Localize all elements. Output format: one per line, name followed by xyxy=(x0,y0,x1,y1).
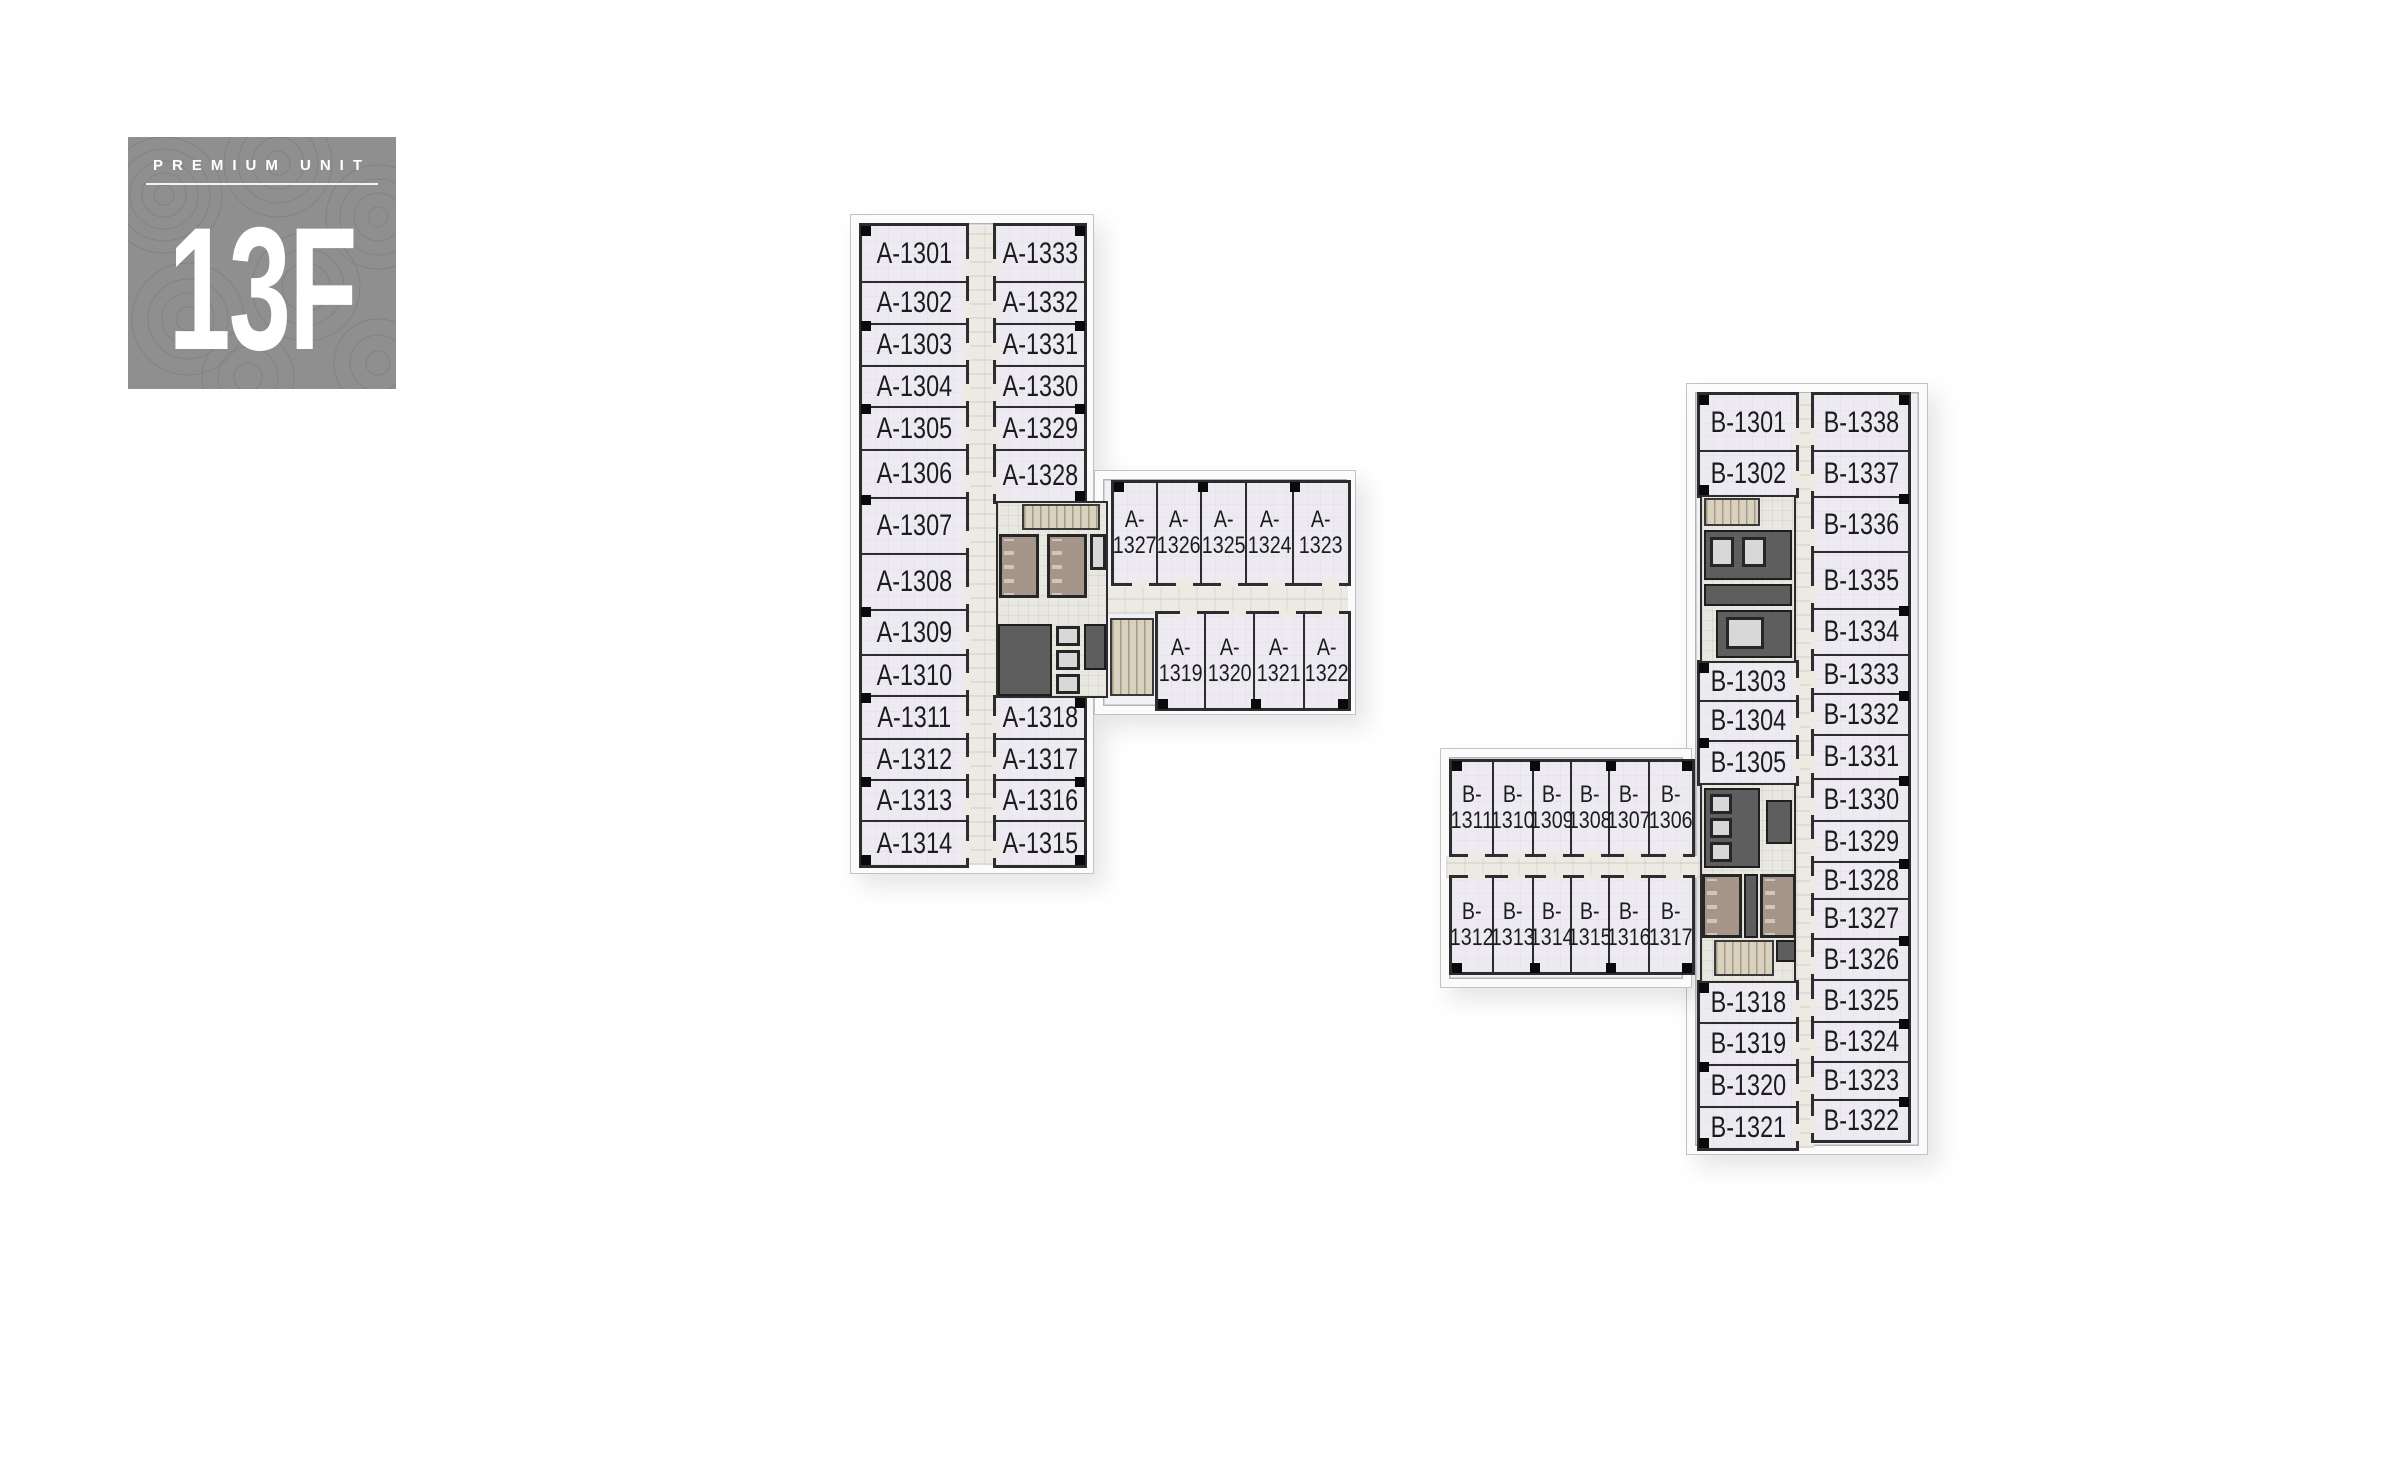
column-dot xyxy=(1699,1062,1709,1072)
door-opening xyxy=(963,384,970,401)
building-a-core-elevator xyxy=(1056,626,1080,646)
unit-label: A-1307 xyxy=(876,509,951,543)
unit-a-1322: A-1322 xyxy=(1305,614,1348,708)
door-opening xyxy=(1810,999,1817,1016)
unit-b-1303: B-1303 xyxy=(1700,663,1796,702)
door-opening xyxy=(1810,1039,1817,1056)
column-dot xyxy=(861,693,871,703)
unit-label: A-1308 xyxy=(876,565,951,599)
building-a-core-elevator xyxy=(1056,650,1080,670)
column-dot xyxy=(1899,395,1909,405)
unit-a-1317: A-1317 xyxy=(996,740,1084,781)
unit-b-1309: B-1309 xyxy=(1534,762,1572,854)
unit-a-1321: A-1321 xyxy=(1255,614,1305,708)
unit-label: B-1336 xyxy=(1823,508,1898,542)
unit-label: A-1320 xyxy=(1208,635,1252,687)
column-dot xyxy=(1699,1138,1709,1148)
column-dot xyxy=(1682,761,1692,771)
unit-a-1314: A-1314 xyxy=(862,822,966,865)
unit-label: A-1331 xyxy=(1002,328,1077,362)
unit-b-1310: B-1310 xyxy=(1494,762,1534,854)
unit-label: A-1311 xyxy=(877,701,951,735)
column-dot xyxy=(1158,699,1168,709)
door-opening xyxy=(1180,610,1197,617)
floor-number: 13F xyxy=(176,189,348,389)
unit-label: B-1325 xyxy=(1823,984,1898,1018)
building-b-lower-core-stairs xyxy=(1714,940,1774,976)
unit-a-1305: A-1305 xyxy=(862,408,966,451)
column-dot xyxy=(861,607,871,617)
unit-label: B-1337 xyxy=(1823,457,1898,491)
floor-badge: PREMIUM UNIT 13F xyxy=(128,137,396,389)
building-b-lower-core-room xyxy=(1766,800,1792,844)
column-dot xyxy=(1075,404,1085,414)
unit-label: B-1326 xyxy=(1823,943,1898,977)
unit-a-1301: A-1301 xyxy=(862,226,966,283)
door-opening xyxy=(1468,874,1485,881)
door-opening xyxy=(1793,718,1800,735)
unit-b-1338: B-1338 xyxy=(1814,395,1908,452)
unit-label: B-1313 xyxy=(1491,899,1535,951)
column-dot xyxy=(1899,1097,1909,1107)
unit-b-1316: B-1316 xyxy=(1610,878,1650,972)
unit-label: A-1316 xyxy=(1002,784,1077,818)
unit-label: B-1318 xyxy=(1710,986,1785,1020)
unit-label: B-1338 xyxy=(1823,406,1898,440)
unit-label: B-1324 xyxy=(1823,1025,1898,1059)
door-opening xyxy=(1584,874,1601,881)
unit-a-1330: A-1330 xyxy=(996,367,1084,408)
unit-b-1330: B-1330 xyxy=(1814,780,1908,822)
unit-a-1323: A-1323 xyxy=(1294,483,1348,583)
door-opening xyxy=(1810,876,1817,893)
door-opening xyxy=(963,587,970,604)
unit-label: A-1329 xyxy=(1002,412,1077,446)
door-opening xyxy=(963,632,970,649)
column-dot xyxy=(1452,963,1462,973)
building-b-wing-bottom-row: B-1312B-1313B-1314B-1315B-1316B-1317 xyxy=(1449,875,1695,975)
door-opening xyxy=(1508,874,1525,881)
unit-label: A-1319 xyxy=(1159,635,1203,687)
column-dot xyxy=(1198,482,1208,492)
unit-b-1336: B-1336 xyxy=(1814,498,1908,553)
unit-label: A-1330 xyxy=(1002,370,1077,404)
door-opening xyxy=(1810,529,1817,546)
column-dot xyxy=(861,777,871,787)
building-b-core-elevator xyxy=(1710,842,1732,862)
unit-label: A-1327 xyxy=(1113,507,1157,559)
unit-a-1318: A-1318 xyxy=(996,698,1084,740)
unit-b-1337: B-1337 xyxy=(1814,452,1908,498)
unit-label: B-1311 xyxy=(1451,782,1493,834)
column-dot xyxy=(1075,855,1085,865)
unit-b-1328: B-1328 xyxy=(1814,863,1908,900)
unit-b-1308: B-1308 xyxy=(1572,762,1610,854)
door-opening xyxy=(963,673,970,690)
building-b-lower-core-room xyxy=(1776,940,1796,962)
door-opening xyxy=(1666,874,1683,881)
unit-b-1322: B-1322 xyxy=(1814,1101,1908,1140)
unit-label: A-1322 xyxy=(1305,635,1349,687)
column-dot xyxy=(1606,963,1616,973)
column-dot xyxy=(1606,761,1616,771)
door-opening xyxy=(1793,1000,1800,1017)
unit-label: A-1326 xyxy=(1157,507,1201,559)
building-a-wing-bottom-row: A-1319A-1320A-1321A-1322 xyxy=(1155,611,1351,711)
unit-b-1323: B-1323 xyxy=(1814,1063,1908,1101)
door-opening xyxy=(1468,851,1485,858)
unit-b-1304: B-1304 xyxy=(1700,702,1796,742)
unit-label: A-1313 xyxy=(876,784,951,818)
door-opening xyxy=(963,757,970,774)
door-opening xyxy=(1793,428,1800,445)
unit-label: A-1323 xyxy=(1299,507,1343,559)
unit-label: A-1332 xyxy=(1002,286,1077,320)
unit-a-1324: A-1324 xyxy=(1247,483,1294,583)
door-opening xyxy=(1810,632,1817,649)
column-dot xyxy=(1682,963,1692,973)
building-a-wing-top-row: A-1327A-1326A-1325A-1324A-1323 xyxy=(1111,480,1351,586)
unit-a-1331: A-1331 xyxy=(996,325,1084,367)
unit-b-1307: B-1307 xyxy=(1610,762,1650,854)
door-opening xyxy=(963,798,970,815)
building-b-core-elevator xyxy=(1742,537,1766,567)
door-opening xyxy=(1793,471,1800,488)
unit-label: B-1305 xyxy=(1710,746,1785,780)
door-opening xyxy=(1793,678,1800,695)
unit-label: B-1323 xyxy=(1823,1064,1898,1098)
column-dot xyxy=(1699,738,1709,748)
door-opening xyxy=(1810,671,1817,688)
unit-label: A-1314 xyxy=(876,827,951,861)
unit-label: A-1325 xyxy=(1202,507,1246,559)
unit-label: A-1309 xyxy=(876,616,951,650)
premium-unit-label: PREMIUM UNIT xyxy=(146,157,378,185)
building-a-right-column-bottom: A-1318A-1317A-1316A-1315 xyxy=(993,695,1087,868)
building-a-right-column-top: A-1333A-1332A-1331A-1330A-1329A-1328 xyxy=(993,223,1087,504)
door-opening xyxy=(1268,580,1285,587)
unit-label: B-1301 xyxy=(1710,406,1785,440)
column-dot xyxy=(1899,494,1909,504)
column-dot xyxy=(1530,761,1540,771)
door-opening xyxy=(1624,874,1641,881)
column-dot xyxy=(1075,777,1085,787)
unit-label: B-1306 xyxy=(1649,782,1693,834)
unit-b-1302: B-1302 xyxy=(1700,452,1796,495)
unit-b-1332: B-1332 xyxy=(1814,695,1908,736)
building-b-core-washroom xyxy=(1760,874,1796,938)
column-dot xyxy=(1290,482,1300,492)
building-a-core-washroom xyxy=(999,534,1039,598)
unit-a-1315: A-1315 xyxy=(996,822,1084,865)
unit-label: B-1332 xyxy=(1823,698,1898,732)
building-a-core-washroom xyxy=(1047,534,1087,598)
door-opening xyxy=(1221,580,1238,587)
unit-a-1333: A-1333 xyxy=(996,226,1084,283)
unit-a-1316: A-1316 xyxy=(996,781,1084,822)
unit-label: B-1320 xyxy=(1710,1069,1785,1103)
unit-a-1319: A-1319 xyxy=(1158,614,1206,708)
unit-label: A-1305 xyxy=(876,412,951,446)
door-opening xyxy=(1810,586,1817,603)
unit-b-1329: B-1329 xyxy=(1814,822,1908,863)
door-opening xyxy=(1810,1116,1817,1133)
unit-b-1306: B-1306 xyxy=(1650,762,1692,854)
unit-label: A-1321 xyxy=(1257,635,1301,687)
door-opening xyxy=(1810,839,1817,856)
door-opening xyxy=(963,343,970,360)
unit-label: B-1317 xyxy=(1649,899,1693,951)
building-b-upper-core-stairs xyxy=(1704,498,1760,526)
unit-label: B-1327 xyxy=(1823,902,1898,936)
unit-b-1301: B-1301 xyxy=(1700,395,1796,452)
unit-label: B-1330 xyxy=(1823,783,1898,817)
unit-label: B-1335 xyxy=(1823,564,1898,598)
door-opening xyxy=(1793,1084,1800,1101)
unit-b-1324: B-1324 xyxy=(1814,1023,1908,1063)
column-dot xyxy=(1899,1019,1909,1029)
door-opening xyxy=(1810,428,1817,445)
building-a-core-room xyxy=(1084,624,1106,670)
door-opening xyxy=(1793,1124,1800,1141)
door-opening xyxy=(992,301,999,318)
building-a-left-column: A-1301A-1302A-1303A-1304A-1305A-1306A-13… xyxy=(859,223,969,868)
unit-label: B-1333 xyxy=(1823,658,1898,692)
door-opening xyxy=(1793,759,1800,776)
door-opening xyxy=(963,427,970,444)
unit-a-1308: A-1308 xyxy=(862,555,966,611)
column-dot xyxy=(1899,936,1909,946)
column-dot xyxy=(1699,395,1709,405)
building-a-core-elevator xyxy=(1056,674,1080,694)
unit-label: B-1329 xyxy=(1823,825,1898,859)
unit-a-1326: A-1326 xyxy=(1158,483,1202,583)
door-opening xyxy=(1810,756,1817,773)
column-dot xyxy=(1899,776,1909,786)
unit-label: B-1303 xyxy=(1710,665,1785,699)
unit-label: B-1319 xyxy=(1710,1027,1785,1061)
door-opening xyxy=(1322,580,1339,587)
door-opening xyxy=(992,798,999,815)
building-a-wing-corridor xyxy=(1106,587,1348,614)
unit-b-1313: B-1313 xyxy=(1494,878,1534,972)
unit-label: A-1333 xyxy=(1002,237,1077,271)
door-opening xyxy=(1810,916,1817,933)
unit-a-1327: A-1327 xyxy=(1114,483,1158,583)
door-opening xyxy=(963,841,970,858)
unit-label: A-1318 xyxy=(1002,701,1077,735)
unit-b-1314: B-1314 xyxy=(1534,878,1572,972)
door-opening xyxy=(963,531,970,548)
door-opening xyxy=(1810,1077,1817,1094)
column-dot xyxy=(1699,485,1709,495)
door-opening xyxy=(1322,610,1339,617)
column-dot xyxy=(1338,699,1348,709)
door-opening xyxy=(992,757,999,774)
unit-label: B-1334 xyxy=(1823,615,1898,649)
unit-a-1329: A-1329 xyxy=(996,408,1084,451)
door-opening xyxy=(1279,610,1296,617)
building-b-left-column-top: B-1301B-1302 xyxy=(1697,392,1799,498)
column-dot xyxy=(1075,226,1085,236)
door-opening xyxy=(1508,851,1525,858)
column-dot xyxy=(1899,859,1909,869)
unit-label: B-1302 xyxy=(1710,457,1785,491)
unit-label: B-1328 xyxy=(1823,864,1898,898)
building-b-core-washroom xyxy=(1702,874,1742,938)
unit-label: A-1317 xyxy=(1002,743,1077,777)
unit-label: B-1307 xyxy=(1607,782,1651,834)
unit-label: A-1306 xyxy=(876,457,951,491)
column-dot xyxy=(1899,691,1909,701)
building-b-core-elevator xyxy=(1710,818,1732,838)
unit-b-1331: B-1331 xyxy=(1814,736,1908,780)
door-opening xyxy=(1546,874,1563,881)
building-a-core-elevator xyxy=(1090,534,1106,570)
unit-b-1320: B-1320 xyxy=(1700,1066,1796,1108)
column-dot xyxy=(861,404,871,414)
unit-label: A-1304 xyxy=(876,370,951,404)
unit-a-1311: A-1311 xyxy=(862,697,966,740)
unit-label: A-1310 xyxy=(876,659,951,693)
unit-b-1319: B-1319 xyxy=(1700,1024,1796,1066)
column-dot xyxy=(1452,761,1462,771)
column-dot xyxy=(1075,491,1085,501)
building-b-core-elevator xyxy=(1710,794,1732,814)
unit-a-1302: A-1302 xyxy=(862,283,966,325)
door-opening xyxy=(992,841,999,858)
building-b-wing-top-row: B-1311B-1310B-1309B-1308B-1307B-1306 xyxy=(1449,759,1695,857)
building-a-core-room xyxy=(998,624,1052,696)
unit-b-1318: B-1318 xyxy=(1700,983,1796,1024)
unit-label: B-1331 xyxy=(1823,740,1898,774)
unit-label: B-1321 xyxy=(1710,1111,1785,1145)
building-b-core-elevator xyxy=(1726,617,1764,649)
door-opening xyxy=(992,384,999,401)
unit-b-1335: B-1335 xyxy=(1814,553,1908,610)
floor-plan-canvas: PREMIUM UNIT 13F A-1301A-1302A-1303A-130… xyxy=(0,0,2400,1460)
unit-label: B-1304 xyxy=(1710,704,1785,738)
door-opening xyxy=(1132,580,1149,587)
unit-b-1326: B-1326 xyxy=(1814,940,1908,981)
door-opening xyxy=(1793,1042,1800,1059)
column-dot xyxy=(1699,663,1709,673)
unit-b-1312: B-1312 xyxy=(1452,878,1494,972)
door-opening xyxy=(992,343,999,360)
door-opening xyxy=(1810,474,1817,491)
unit-label: B-1316 xyxy=(1607,899,1651,951)
unit-a-1320: A-1320 xyxy=(1206,614,1255,708)
column-dot xyxy=(861,495,871,505)
unit-label: B-1308 xyxy=(1568,782,1612,834)
column-dot xyxy=(1075,321,1085,331)
unit-label: A-1315 xyxy=(1002,827,1077,861)
door-opening xyxy=(963,259,970,276)
unit-a-1312: A-1312 xyxy=(862,740,966,781)
door-opening xyxy=(992,716,999,733)
door-opening xyxy=(963,301,970,318)
column-dot xyxy=(861,855,871,865)
column-dot xyxy=(1075,698,1085,708)
column-dot xyxy=(1530,963,1540,973)
unit-a-1310: A-1310 xyxy=(862,656,966,697)
door-opening xyxy=(1810,957,1817,974)
unit-a-1309: A-1309 xyxy=(862,611,966,656)
unit-a-1325: A-1325 xyxy=(1202,483,1247,583)
unit-label: A-1328 xyxy=(1002,459,1077,493)
door-opening xyxy=(1229,610,1246,617)
unit-b-1305: B-1305 xyxy=(1700,742,1796,783)
door-opening xyxy=(1176,580,1193,587)
door-opening xyxy=(992,477,999,494)
door-opening xyxy=(963,475,970,492)
door-opening xyxy=(1810,798,1817,815)
door-opening xyxy=(963,716,970,733)
building-b-left-column-mid: B-1303B-1304B-1305 xyxy=(1697,660,1799,786)
unit-label: A-1301 xyxy=(876,237,951,271)
building-b-left-column-bottom: B-1318B-1319B-1320B-1321 xyxy=(1697,980,1799,1151)
unit-label: B-1315 xyxy=(1568,899,1612,951)
unit-label: B-1312 xyxy=(1450,899,1494,951)
unit-b-1317: B-1317 xyxy=(1650,878,1692,972)
door-opening xyxy=(1666,851,1683,858)
column-dot xyxy=(1251,699,1261,709)
unit-b-1311: B-1311 xyxy=(1452,762,1494,854)
unit-a-1328: A-1328 xyxy=(996,451,1084,501)
unit-b-1334: B-1334 xyxy=(1814,610,1908,656)
column-dot xyxy=(1899,606,1909,616)
door-opening xyxy=(992,259,999,276)
building-a-wing-stairs xyxy=(1110,618,1154,696)
column-dot xyxy=(861,321,871,331)
door-opening xyxy=(1624,851,1641,858)
door-opening xyxy=(1546,851,1563,858)
unit-b-1321: B-1321 xyxy=(1700,1108,1796,1148)
building-b-right-column: B-1338B-1337B-1336B-1335B-1334B-1333B-13… xyxy=(1811,392,1911,1143)
unit-a-1307: A-1307 xyxy=(862,499,966,555)
building-b-core-elevator xyxy=(1710,537,1734,567)
unit-b-1325: B-1325 xyxy=(1814,981,1908,1023)
unit-label: A-1302 xyxy=(876,286,951,320)
unit-a-1303: A-1303 xyxy=(862,325,966,367)
building-b-upper-core-room xyxy=(1704,584,1792,606)
unit-label: A-1312 xyxy=(876,743,951,777)
unit-label: B-1310 xyxy=(1491,782,1535,834)
column-dot xyxy=(1114,482,1124,492)
door-opening xyxy=(1584,851,1601,858)
unit-label: B-1322 xyxy=(1823,1104,1898,1138)
unit-label: A-1303 xyxy=(876,328,951,362)
unit-b-1327: B-1327 xyxy=(1814,900,1908,940)
unit-a-1332: A-1332 xyxy=(996,283,1084,325)
building-b-core-shaft xyxy=(1744,874,1758,938)
unit-b-1315: B-1315 xyxy=(1572,878,1610,972)
unit-b-1333: B-1333 xyxy=(1814,656,1908,695)
unit-a-1313: A-1313 xyxy=(862,781,966,822)
column-dot xyxy=(861,226,871,236)
unit-label: A-1324 xyxy=(1248,507,1292,559)
column-dot xyxy=(1699,983,1709,993)
unit-a-1306: A-1306 xyxy=(862,451,966,499)
building-a-core-stairs xyxy=(1022,504,1100,530)
door-opening xyxy=(992,427,999,444)
unit-a-1304: A-1304 xyxy=(862,367,966,408)
door-opening xyxy=(1810,712,1817,729)
